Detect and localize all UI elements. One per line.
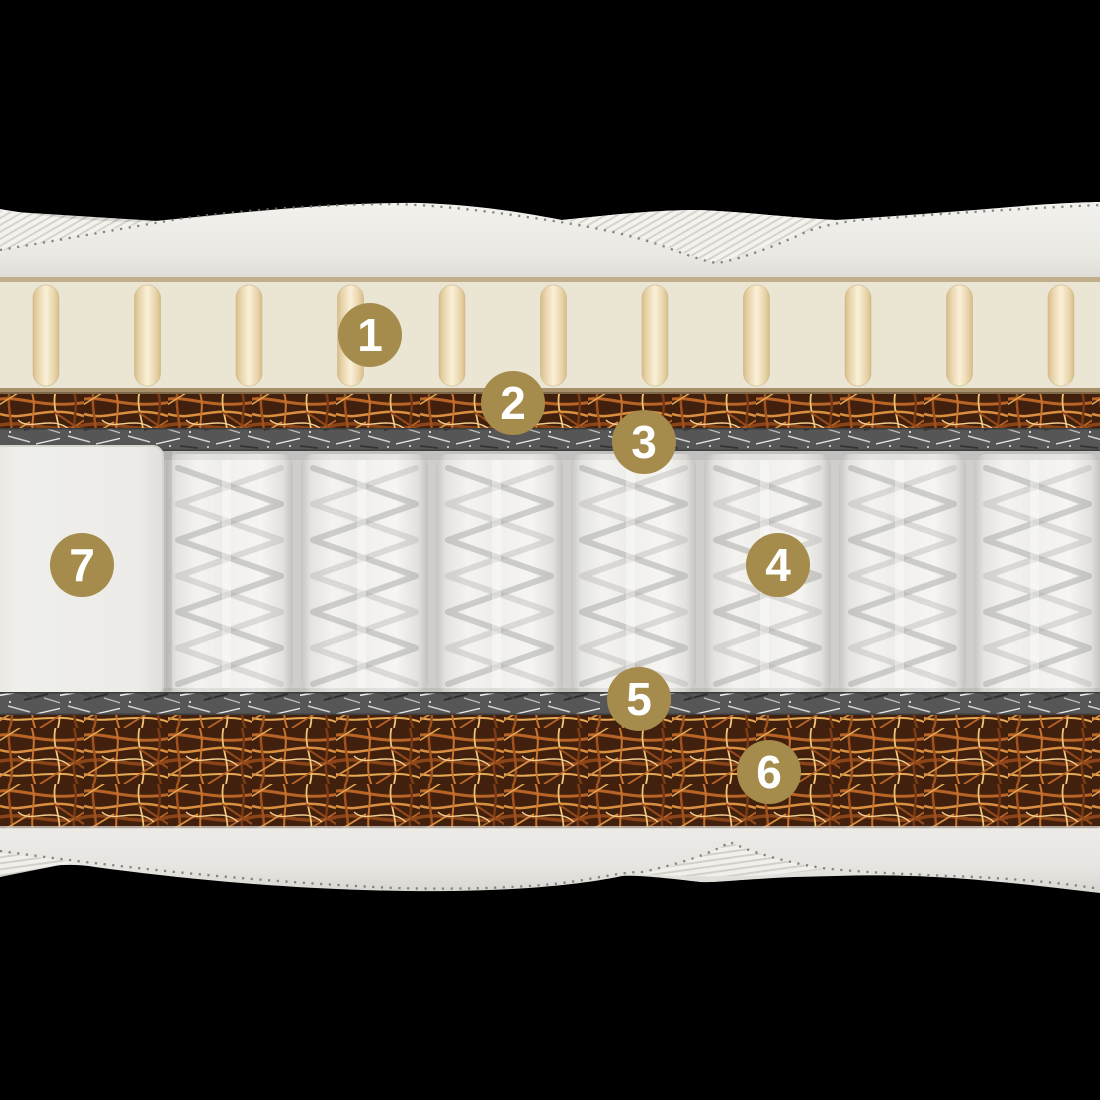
layer-badge-4: 4 [746, 533, 810, 597]
mattress-cross-section [0, 0, 1100, 1100]
layer-badge-1-number: 1 [357, 312, 383, 358]
cover-latex-trim-line [0, 277, 1100, 282]
layer-badge-4-number: 4 [765, 542, 791, 588]
layer-badge-7-number: 7 [69, 542, 95, 588]
latex-groove [236, 285, 262, 386]
layer-badge-7: 7 [50, 533, 114, 597]
latex-groove [439, 285, 465, 386]
layer-badge-2: 2 [481, 371, 545, 435]
latex-groove [642, 285, 668, 386]
latex-groove [135, 285, 161, 386]
felt-layer-top [0, 428, 1100, 451]
mattress-layer-diagram: 1 2 3 4 5 6 7 [0, 0, 1100, 1100]
layer-badge-5-number: 5 [626, 676, 652, 722]
latex-bottom-trim-line [0, 388, 1100, 392]
latex-groove [33, 285, 59, 386]
layer-badge-2-number: 2 [500, 380, 526, 426]
layer-badge-3-number: 3 [631, 419, 657, 465]
latex-groove [541, 285, 567, 386]
layer-badge-3: 3 [612, 410, 676, 474]
latex-groove [845, 285, 871, 386]
latex-groove [744, 285, 770, 386]
coir-layer-bottom [0, 715, 1100, 828]
coir-layer-top [0, 394, 1100, 428]
felt-layer-bottom [0, 692, 1100, 715]
layer-badge-1: 1 [338, 303, 402, 367]
latex-groove [1048, 285, 1074, 386]
latex-layer [0, 282, 1100, 394]
layer-badge-5: 5 [607, 667, 671, 731]
layer-badge-6-number: 6 [756, 749, 782, 795]
latex-groove [947, 285, 973, 386]
layer-badge-6: 6 [737, 740, 801, 804]
